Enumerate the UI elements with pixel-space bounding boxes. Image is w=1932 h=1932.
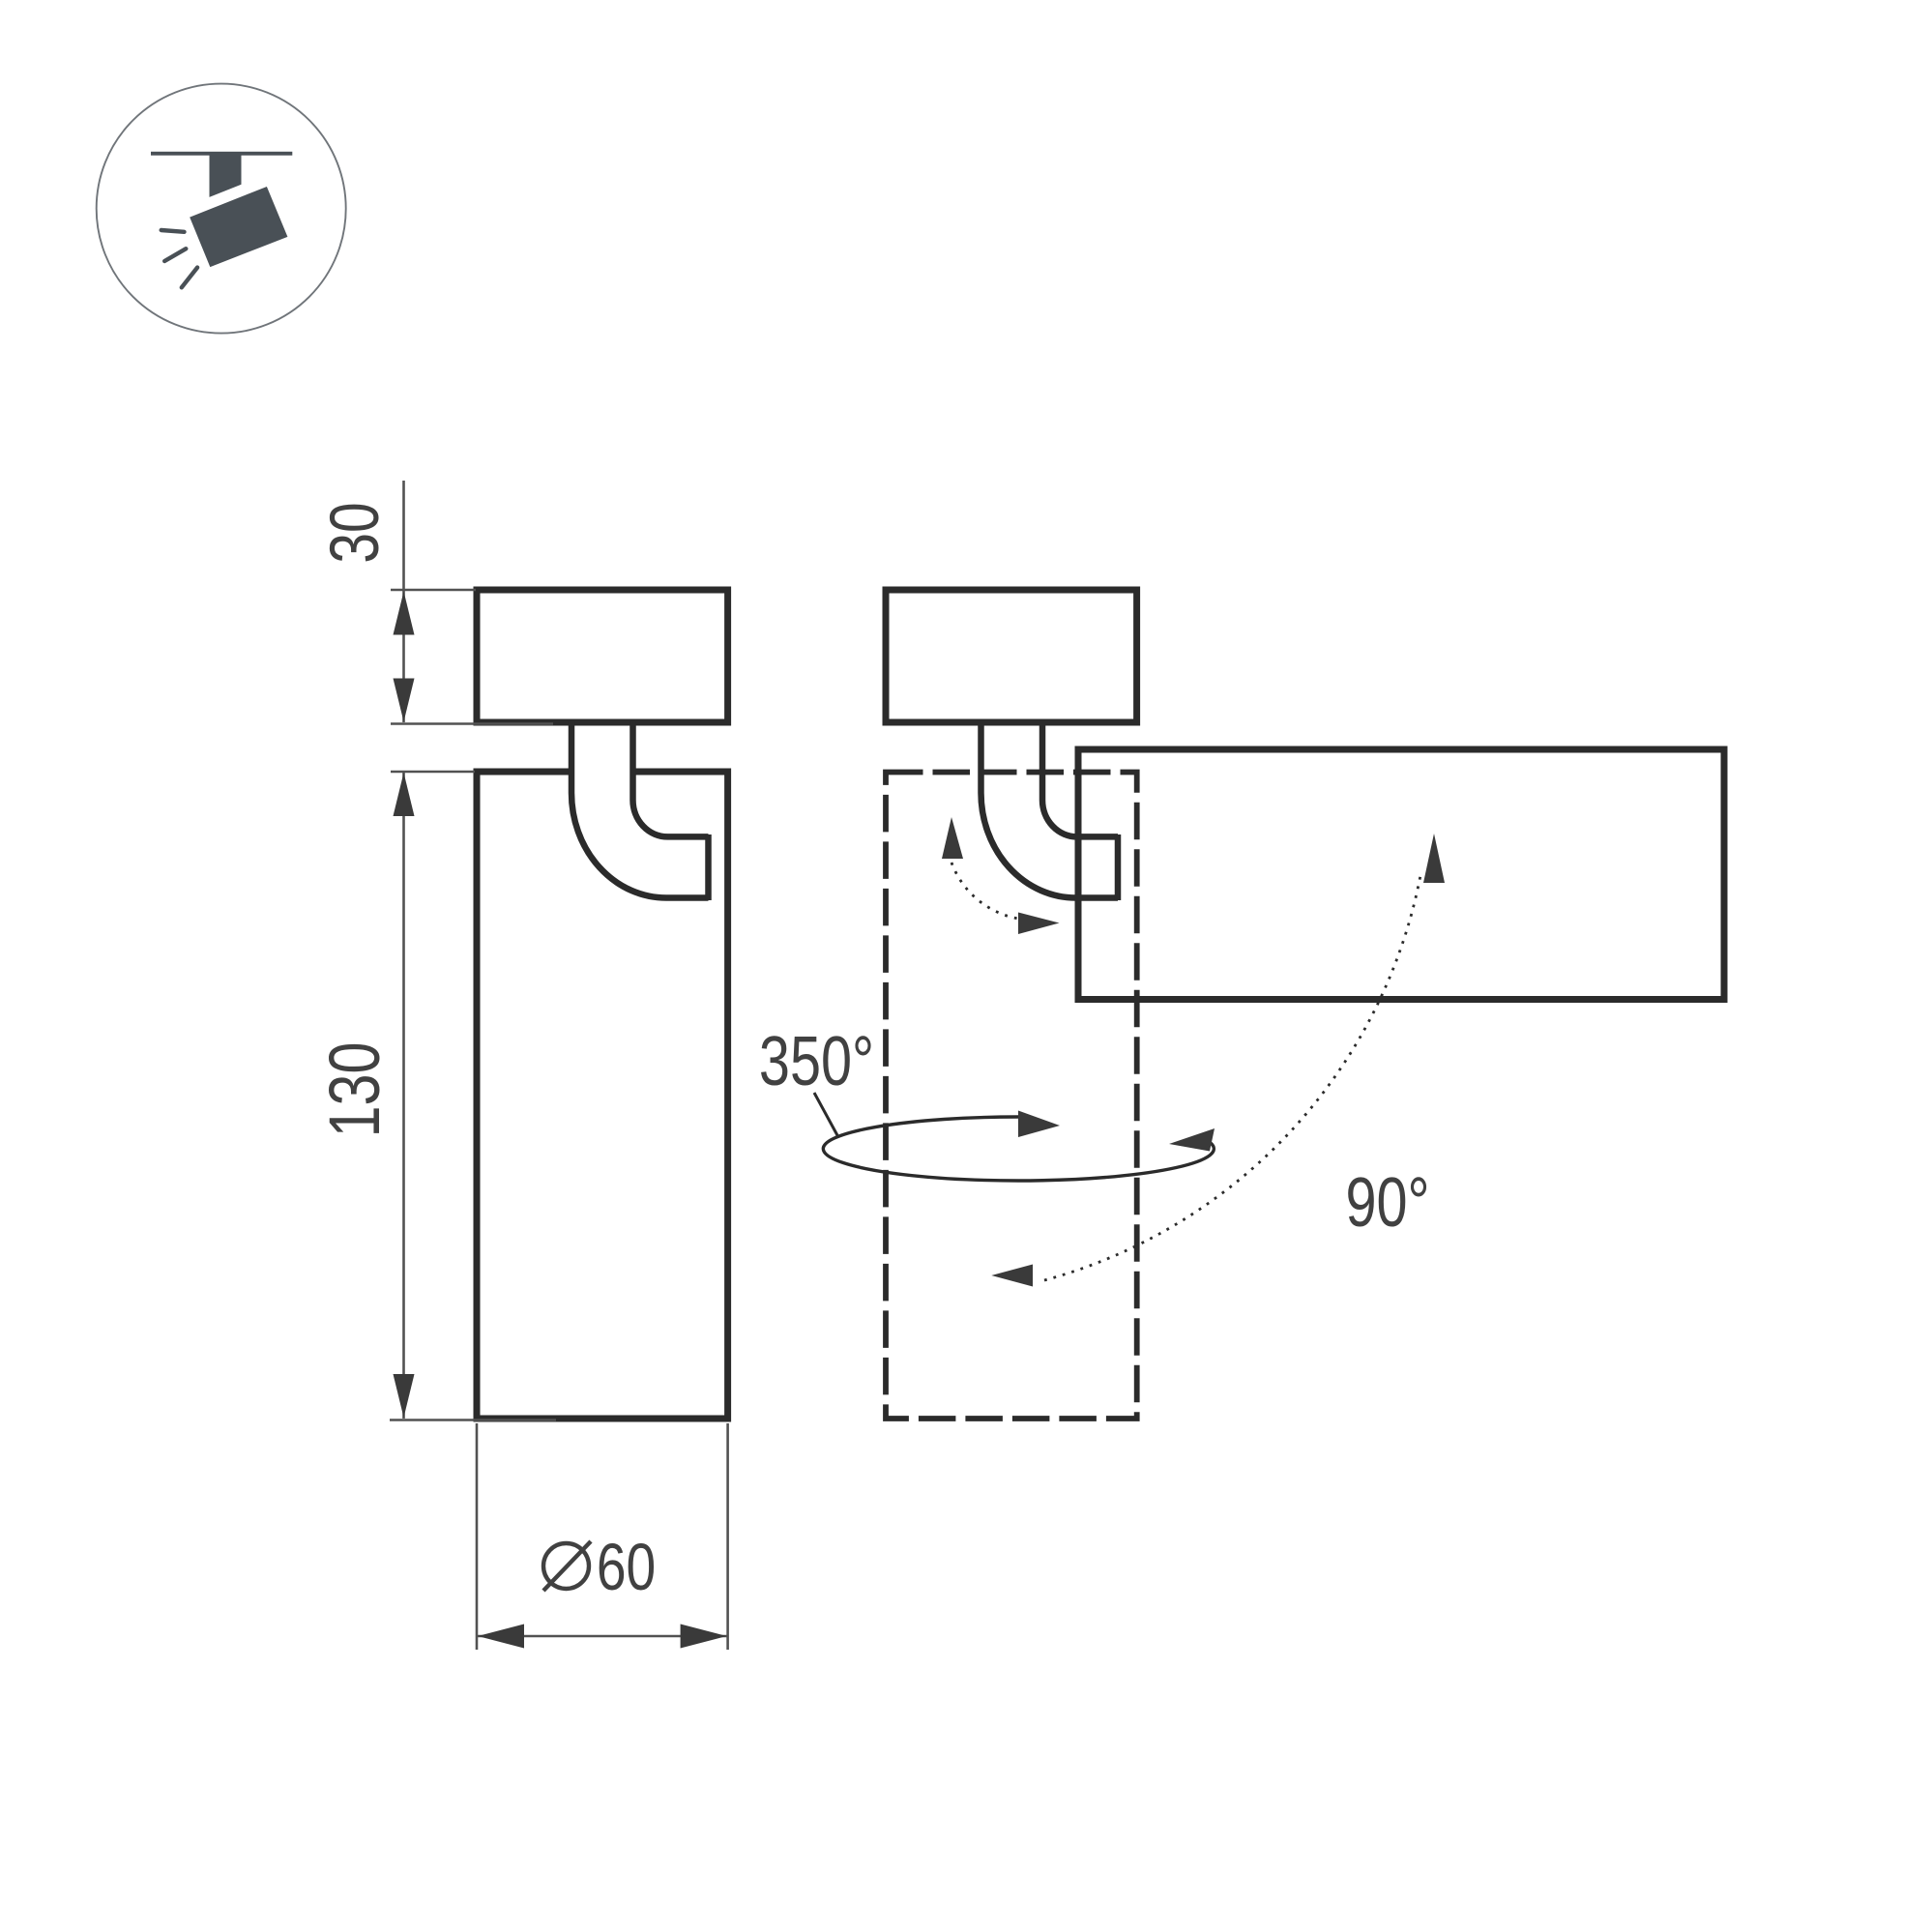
- svg-text:130: 130: [315, 1042, 395, 1138]
- svg-text:60: 60: [597, 1530, 656, 1604]
- svg-text:30: 30: [316, 502, 394, 563]
- svg-text:90°: 90°: [1345, 1163, 1429, 1242]
- svg-text:350°: 350°: [759, 1022, 874, 1100]
